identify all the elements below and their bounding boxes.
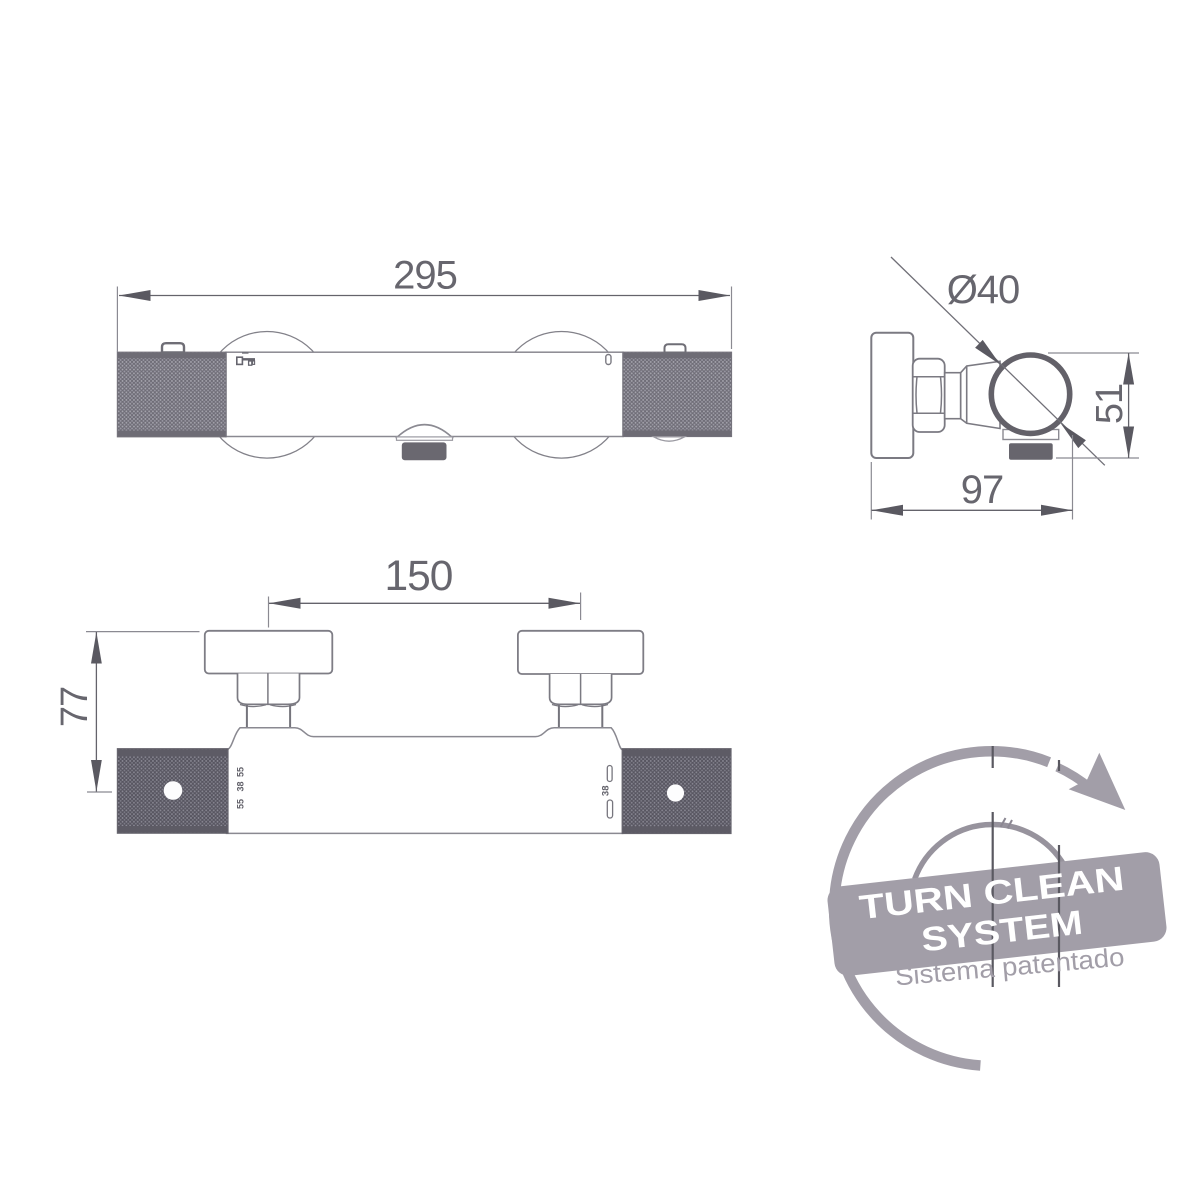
svg-text:97: 97 — [961, 468, 1004, 512]
svg-text:77: 77 — [54, 687, 96, 727]
svg-text:38: 38 — [236, 781, 246, 791]
svg-text:55: 55 — [236, 799, 246, 809]
svg-text:150: 150 — [385, 553, 453, 600]
svg-text:55: 55 — [236, 767, 246, 777]
svg-text:Ø40: Ø40 — [947, 268, 1020, 312]
svg-text:51: 51 — [1089, 384, 1131, 424]
svg-text:38: 38 — [601, 786, 612, 797]
svg-text:295: 295 — [393, 254, 457, 298]
